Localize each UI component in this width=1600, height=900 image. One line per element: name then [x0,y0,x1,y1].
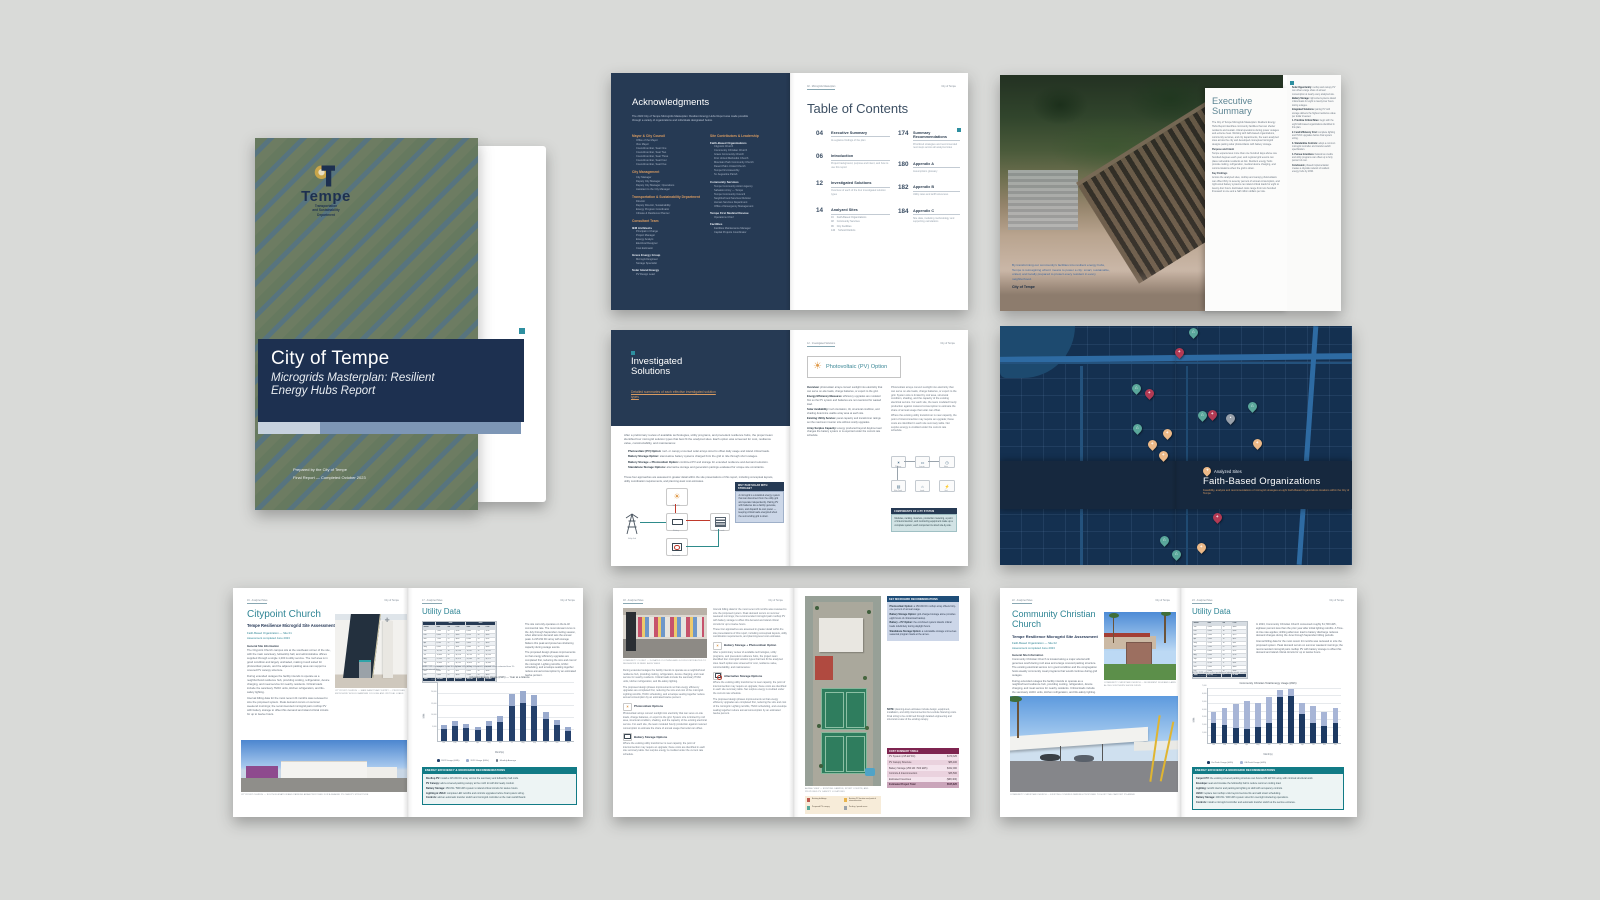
toc-entry: 14Analyzed Sites16Faith-Based Organizati… [816,208,890,231]
report-title: City of Tempe [271,348,511,370]
bar-May [1255,688,1261,743]
paragraph: During extended outages the facility int… [1012,680,1098,696]
cc-usage-chart: Community Christian Total Energy Usage (… [1192,682,1344,764]
map-pin-gray: • [1224,412,1237,425]
band-title: Faith-Based Organizations [1203,476,1351,487]
acknowledgments-intro: The 2023 City of Tempe Microgrids Master… [632,115,754,123]
spread-acknowledgments-toc: Acknowledgments The 2023 City of Tempe M… [611,73,968,310]
paragraph: Interval billing data for the most recen… [713,608,787,626]
map-pin-orange: + [1195,541,1208,554]
ack-section-heading: City Management [632,170,704,174]
map-pin-orange: + [1157,449,1170,462]
lead-item: Battery Storage: 200 kW / 400 kWh system… [1196,796,1340,800]
cc-caption-2: Community Christian Church — existing co… [1010,794,1178,797]
bar-segment [452,726,458,741]
mid-rec-box: KEY MICROGRID RECOMMENDATIONS Photovolta… [887,596,959,641]
inv-title: Investigated Solutions [631,357,717,378]
cp-photo-sanctuary: ✚ [335,614,407,688]
exec-title: Executive Summary [1212,96,1267,116]
lead-item: Lighting & HVAC: complete LED retrofits … [426,792,573,796]
toc-column-right: 174Summary RecommendationsPrioritized st… [898,131,960,236]
cc-utility-paragraph: In 2023, Community Christian Church cons… [1256,623,1344,657]
inv-sidebar-header: WHY PAIR SOLAR WITH STORAGE? [735,482,784,491]
lead-item: Conclusion: phased implementation create… [1292,165,1336,175]
cp-caption-2: Citypoint Church — south elevation and p… [241,794,407,797]
bar-Nov [554,682,560,741]
connector-battery-load [686,520,710,521]
ack-subgroup: Facilities [710,222,782,226]
lead-item: Standalone Storage Options: alternative … [628,466,778,470]
ack-item: Office of Emergency Management [710,205,782,209]
chart-legend: On-Peak Usage (kWh)Off-Peak Usage (kWh) [1207,761,1266,764]
inv-sidebar-body: A microgrid is a localized energy system… [735,491,784,523]
cc-post-1 [1060,746,1061,761]
aerial-legend-item: Existing PV location and point of interc… [844,798,879,805]
lead-item: 2. Fund Efficiency First: complete light… [1292,132,1336,142]
mid-col2c: Where the existing utility transformer i… [713,681,787,716]
toc-column-left: 04Executive SummaryAt-a-glance findings … [816,131,890,244]
paragraph: Interval billing data for the most recen… [247,697,331,717]
cc-palm-2 [1164,613,1166,643]
exec-title-panel: Executive Summary The City of Tempe Micr… [1205,88,1287,311]
connector-generator-load [686,546,719,547]
cc-address-2: Assessment completed June 2023 [1012,646,1055,650]
cover-credit-1: Prepared by the City of Tempe [293,466,366,474]
bar-segment [441,729,447,742]
bar-Jul [509,682,515,741]
cc-palm-fronds-3 [1010,696,1022,702]
grid-tower-icon [624,512,640,536]
cover-title-block: City of Tempe Microgrids Masterplan: Res… [258,339,524,422]
bar-Sep [531,682,537,741]
chart-x-axis-label: Month(s) [422,752,577,754]
paragraph-heading: Purpose and Intent [1212,148,1280,152]
connector-pv-battery [675,504,676,513]
chart-y-axis-label: kWh [1193,718,1195,723]
aerial-pool [865,768,875,776]
lead-item: Battery Storage + Photovoltaic Option: c… [628,461,778,465]
inv-bullet-list: Photovoltaic (PV) Option: roof- or canop… [628,450,778,472]
aerial-courts-1 [821,688,867,730]
bar-Jul [1277,688,1283,743]
toc-title: Table of Contents [807,101,908,116]
inv-accent-square [631,351,635,355]
ack-item: Cost Estimator [632,247,704,251]
chart-plot-area: 1,0002,0003,0004,0005,0006,0007,000JanFe… [1207,688,1341,744]
battery-icon [666,513,688,531]
cc-sign-monument [1126,642,1152,666]
spread-executive-summary: By transforming our community's faciliti… [1000,75,1341,311]
map-title-band: + Analyzed Sites Faith-Based Organizatio… [1000,461,1352,509]
aerial-road-left [805,596,813,786]
bar-segment [497,722,503,741]
mid-col1b: Photovoltaic arrays convert sunlight int… [623,712,707,730]
bar-segment [509,694,515,705]
aerial-road-top [805,596,881,602]
bar-segment [1211,712,1217,724]
bar-segment [1333,708,1339,722]
cover-band-light [258,422,320,434]
cover-credit-2: Final Report — Completed October 2023 [293,474,366,482]
exec-quote: By transforming our community's faciliti… [1012,263,1114,290]
map-pin-teal: ⌂ [1131,422,1144,435]
lead-item: Battery Storage Option: grid-charged sto… [890,613,957,620]
paragraph: Tempe experiences more than one hundred … [1212,152,1280,170]
ack-section-heading: Mayor & City Council [632,134,704,138]
paragraph: In 2023, Community Christian Church cons… [1256,623,1344,638]
bar-Jun [497,682,503,741]
bar-segment [1321,712,1327,726]
bar-segment [531,706,537,741]
logo-subline-3: Department [271,213,381,217]
aerial-red-building [815,656,833,680]
ack-section-heading: Site Contributors & Leadership [710,134,782,138]
pv-option-icon: ☀ [813,362,822,372]
bar-segment [1333,723,1339,743]
exec-quote-text: By transforming our community's faciliti… [1012,263,1110,281]
mid-aerial-photo [805,596,881,786]
paragraph: During extended outages the facility int… [247,675,331,695]
cover-back-page [476,146,546,502]
paragraph-heading: General Site Information [247,645,331,649]
pv-schematic: ☀ PV Array ▭ Inverter ◷ Meter ▤ Main Pan… [891,456,957,506]
map-pin-red: + [1143,387,1156,400]
map-pin-red: + [1211,511,1224,524]
bar-Sep [1299,688,1305,743]
bar-segment [543,719,549,741]
ack-item: Councilmember, Seat Five [632,163,704,167]
paragraph: The Citypoint Church campus sits at the … [247,649,331,673]
lead-item: Overview: photovoltaic arrays convert su… [807,386,883,394]
cp-caption-1: Citypoint Church — main sanctuary entry … [335,690,407,696]
ack-subgroup: Tempe First Medical Rescue [710,211,782,215]
paragraph: These four approaches are assessed in gr… [713,628,787,639]
map-pin-orange: + [1161,427,1174,440]
bar-Dec [565,682,571,741]
cp-breadcrumb-left: 16 · Analyzed Sites [247,599,267,602]
cp-address-2: Assessment completed June 2023 [247,636,290,640]
bar-segment [1321,726,1327,743]
paragraph: Where the existing utility transformer i… [623,742,707,757]
cc-sign-roof [1104,633,1150,637]
cp-table-note: NOTE: kWh consumption taken directly fro… [422,666,518,672]
bar-segment [475,730,481,741]
bar-segment [1222,725,1228,743]
cc-breadcrumb-left: 22 · Analyzed Sites [1012,599,1032,602]
diagram-battery-label: Battery [666,530,686,532]
cc-car-1 [1040,754,1060,762]
solar-pv-icon: ☀ [666,488,688,506]
cp-body-text: General Site InformationThe Citypoint Ch… [247,643,331,719]
bar-segment [1277,697,1283,743]
cc-photo-sign [1104,612,1176,680]
pv-brand: City of Tempe [907,342,955,345]
paragraph: Where the existing utility transformer i… [891,414,957,433]
pv-options-section: ☀Photovoltaic Options [623,703,707,711]
paragraph: The site currently operates on the E-32 … [525,623,577,649]
cc-caption-1: Community Christian Church — monument si… [1104,682,1176,688]
schem-connector-v [897,466,898,480]
toc-entry: 12Investigated SolutionsOverview of each… [816,181,890,196]
mid-breadcrumb-left: 18 · Analyzed Sites [623,599,643,602]
lead-item: Integrated Solutions: pairing PV with st… [1292,109,1336,119]
bar-segment [1266,723,1272,743]
sun-icon: ☀ [623,703,632,711]
cc-address-1: Faith-Based Organization — Site 02 [1012,641,1057,645]
pv-components-body: Modules, racking, inverters, production … [891,514,957,532]
mid-brand-left: City of Tempe [735,599,783,602]
lead-item: PV Canopy: add a covered-parking canopy … [426,782,573,786]
aerial-legend: Existing buildingsExisting PV location a… [805,796,881,814]
toc-entry: 182Appendix BUtility rates and tariff re… [898,185,960,196]
lead-item: Rooftop PV: install a 215 kW DC array ac… [426,777,573,781]
cc-brand-left: City of Tempe [1122,599,1170,602]
bar-segment [486,726,492,741]
cc-utility-title: Utility Data [1192,607,1231,616]
bar-segment [1310,723,1316,743]
mid-col2: Interval billing data for the most recen… [713,608,787,718]
diagram-pv-label: Solar PV [666,505,686,507]
bar-segment [1299,703,1305,714]
bar-segment [520,703,526,741]
paragraph: The proposed design phases improvements … [623,686,707,701]
lead-item: Carport PV: the existing covered parking… [1196,777,1340,781]
chart-legend: 2022 Usage (kWh)2023 Usage (kWh)Monthly … [437,759,516,762]
ack-item: Storage Specialist [632,262,704,266]
bar-segment [1299,714,1305,743]
map-pin-orange: + [1251,437,1264,450]
mid-aerial-caption: Aerial view — existing campus, sport cou… [805,788,881,794]
spread-site-detail: 18 · Analyzed Sites City of Tempe Commun… [613,588,970,817]
cp-recommendations-box: ENERGY EFFICIENCY & MICROGRID RECOMMENDA… [422,767,577,805]
aerial-trees [815,606,819,610]
mid-photo-interior [623,608,707,658]
mid-note: NOTE: planning-level estimates include d… [887,708,959,722]
lead-item: Battery Storage Option: stand-alone batt… [628,455,778,459]
cover-accent-square [519,328,525,334]
aerial-legend-item: Parking / paved areas [844,806,879,812]
lead-item: HVAC: replace two rooftop units beyond s… [1196,792,1340,796]
exec-panel-body: The City of Tempe Microgrids Masterplan:… [1212,121,1280,194]
toc-entry: 04Executive SummaryAt-a-glance findings … [816,131,890,142]
bar-segment [1222,708,1228,725]
exec-right-page: Solar Opportunity: rooftop and canopy PV… [1287,75,1341,311]
cc-palm-1 [1113,616,1115,643]
bar-segment [509,706,515,741]
connector-grid-battery [640,522,666,523]
cc-title: Community Christian Church [1012,609,1104,630]
cc-brand-right: City of Tempe [1296,599,1344,602]
building-icon [710,513,730,531]
alt-storage-section: Alternative Storage Options [713,672,787,680]
chart-x-axis-label: Month(s) [1192,754,1344,756]
lead-item: Envelope: seal and insulate the fellowsh… [1196,782,1340,786]
ack-item: Assistant to the City Manager [632,188,704,192]
bar-Apr [1244,688,1250,743]
band-content: + Analyzed Sites Faith-Based Organizatio… [1203,467,1351,496]
cc-car-2 [1074,755,1094,763]
cp-brand-right: City of Tempe [527,599,575,602]
band-pin-icon: + [1201,465,1212,476]
paragraph: After a preliminary review of available … [713,651,787,669]
acknowledgments-col2: Site Contributors & LeadershipFaith-Base… [710,131,782,235]
paragraph: Across the analyzed sites, rooftop and c… [1212,176,1280,194]
band-kicker: Analyzed Sites [1214,469,1242,474]
cp-utility-table: 20222023MonthkWhkWCostkWhkWCostJan7,0002… [422,621,497,683]
ack-section-heading: Transportation & Sustainability Departme… [632,195,704,199]
cp-photo2-purple-wall [246,766,278,778]
pv-components-box: COMPONENTS OF A PV SYSTEM Modules, racki… [891,508,957,532]
lead-item: Solar Opportunity: rooftop and canopy PV… [1292,87,1336,97]
bar-segment [543,712,549,719]
toc-page: 02 · Microgrids Masterplan City of Tempe… [790,73,968,310]
spread-analyzed-sites-map: + Analyzed Sites Faith-Based Organizatio… [1000,326,1352,565]
cp-photo-elevation [241,740,407,792]
cc-breadcrumb-right: 23 · Analyzed Sites [1192,599,1212,602]
cc-recommendations-box: ENERGY EFFICIENCY & MICROGRID RECOMMENDA… [1192,767,1344,810]
paragraph: Photovoltaic arrays convert sunlight int… [623,712,707,730]
lead-item: Battery Storage: 250 kW / 500 kWh system… [426,787,573,791]
pv-col2: Photovoltaic arrays convert sunlight int… [891,386,957,435]
bar-segment [1288,689,1294,696]
cp-photo-tower [383,621,393,677]
lead-item: 1. Prioritize Critical Sites: begin with… [1292,120,1336,130]
map-water [1000,326,1075,378]
tempe-logo-icon [311,163,341,189]
microgrid-diagram: Utility Grid ☀ Solar PV Battery Generato… [624,488,730,558]
toc-entry: 174Summary RecommendationsPrioritized st… [898,131,960,150]
paragraph-heading: Key Findings [1212,172,1280,176]
cp-photo2-building [281,761,367,780]
paragraph: During extended outages the facility int… [623,669,707,684]
paragraph: The City of Tempe Microgrids Masterplan:… [1212,121,1280,146]
lead-item: Controls: install a microgrid controller… [1196,801,1340,805]
inv-intro: After a preliminary review of available … [624,433,778,446]
mid-rec-body: Photovoltaic Option: a 150 kW DC rooftop… [887,602,959,640]
tempe-logo: Tempe Transportation and Sustainability … [271,163,381,217]
bar-Mar [1233,688,1239,743]
cc-carport-canopy [1010,727,1148,752]
bar-segment [1233,704,1239,728]
mid-photo-racks [638,617,704,637]
aerial-courts-2 [821,732,867,774]
cc-utility-table: MonthkWhkWCostJan4,00015$460Feb4,40016$5… [1192,621,1248,679]
lead-item: Battery + PV Option: the combined system… [890,621,957,628]
cc-post-2 [1102,744,1103,761]
paragraph-heading: General Site Information [1012,654,1098,658]
lead-item: Solar Availability: roof orientation, ti… [807,408,883,416]
exec-quote-attribution: City of Tempe [1012,285,1114,290]
bar-May [486,682,492,741]
bar-segment [1244,729,1250,743]
toc-entry: 180Appendix AAssumptions glossary [898,162,960,173]
cp-address-1: Faith-Based Organization — Site 01 [247,631,292,635]
report-subtitle: Microgrids Masterplan: Resilient Energy … [271,372,461,398]
ack-section-heading: Consultant Team [632,219,704,223]
batt-pv-icon: ☀ [713,642,722,650]
cp-photo-kiosk [359,660,371,678]
ack-item: St. Augustine Parish [710,173,782,177]
map-pin-teal: ⌂ [1158,534,1171,547]
toc-sub-entry: 48Community Services [831,220,890,223]
map-pin-red: + [1206,408,1219,421]
bar-Oct [1310,688,1316,743]
battery-options-section: Battery Storage Options [623,733,707,741]
bar-segment [554,725,560,741]
cost-summary-table: COST SUMMARY TABLE PV System (215 kW DC)… [887,748,959,788]
bar-segment [1266,697,1272,723]
bar-segment [1310,706,1316,723]
battery-small-icon [623,733,632,741]
bar-segment [1244,701,1250,729]
ack-item: Operations Chief [710,216,782,220]
lead-item: Array Surplus Capacity: energy produced … [807,427,883,439]
map-pin-teal: ⌂ [1187,326,1200,339]
aerial-legend-item: Proposed PV canopy [807,806,842,812]
cp-utility-title: Utility Data [422,607,461,616]
bar-Nov [1321,688,1327,743]
toc-brand: City of Tempe [908,85,956,88]
aerial-main-roof [819,618,863,652]
pv-col1: Overview: photovoltaic arrays convert su… [807,386,883,440]
lead-item: Existing Utility Service: panel capacity… [807,417,883,425]
aerial-legend-item: Existing buildings [807,798,842,805]
cc-palm-fronds-2 [1161,612,1171,616]
lead-item: Battery Storage: right-sized systems isl… [1292,98,1336,108]
toc-sub-entry: 16Faith-Based Organizations [831,216,890,219]
spread-community-christian: 22 · Analyzed Sites City of Tempe Commun… [1000,588,1357,817]
cc-subtitle: Tempe Resilience Microgrid Site Assessme… [1012,634,1098,639]
chart-title: Citypoint Energy Usage (kWh) — Year at a… [422,676,577,679]
cp-usage-chart: Citypoint Energy Usage (kWh) — Year at a… [422,676,577,762]
generator-small-icon [713,672,722,680]
paragraph: Interval billing data for the most recen… [1256,640,1344,655]
spread-citypoint: 16 · Analyzed Sites City of Tempe Citypo… [233,588,583,817]
bar-Jun [1266,688,1272,743]
map-freeway-horizontal-edge [1000,362,1352,364]
schem-connector-h1 [904,461,915,462]
bar-Apr [475,682,481,741]
cc-table-note: NOTE: 2023 values reflect partial-year l… [1192,672,1250,678]
toc-accent-square [957,128,961,132]
cp-brand-left: City of Tempe [351,599,399,602]
bar-segment [531,695,537,706]
mid-col2a: Interval billing data for the most recen… [713,608,787,639]
ack-item: Capital Projects Coordinator [710,231,782,235]
mid-col1a: During extended outages the facility int… [623,669,707,700]
mid-photo-caption: Community closet — donated clothing and … [623,660,707,666]
bar-Dec [1333,688,1339,743]
toc-breadcrumb: 02 · Microgrids Masterplan [807,85,835,88]
generator-icon [666,538,688,556]
cp-subtitle: Tempe Resilience Microgrid Site Assessme… [247,623,335,628]
mid-col1c: Where the existing utility transformer i… [623,742,707,757]
ack-item: PV Design Lead [632,273,704,277]
cc-rec-body: Carport PV: the existing covered parking… [1192,773,1344,810]
bar-segment [1211,723,1217,743]
bar-segment [1233,728,1239,743]
batt-pv-section: ☀Battery Storage + Photovoltaic Option [713,642,787,650]
band-subtitle: Feasibility, analysis and recommendation… [1203,489,1351,497]
map-pin-orange: + [1146,438,1159,451]
inv-subtitle: Detailed summaries of each effective inv… [631,390,723,400]
portfolio-canvas: Tempe Transportation and Sustainability … [0,0,1600,900]
cc-palm-3 [1017,700,1019,738]
bar-Jan [441,682,447,741]
exec-right-column: Solar Opportunity: rooftop and canopy PV… [1292,87,1336,175]
bar-Oct [543,682,549,741]
toc-sub-entry: 96City Facilities [831,225,890,228]
